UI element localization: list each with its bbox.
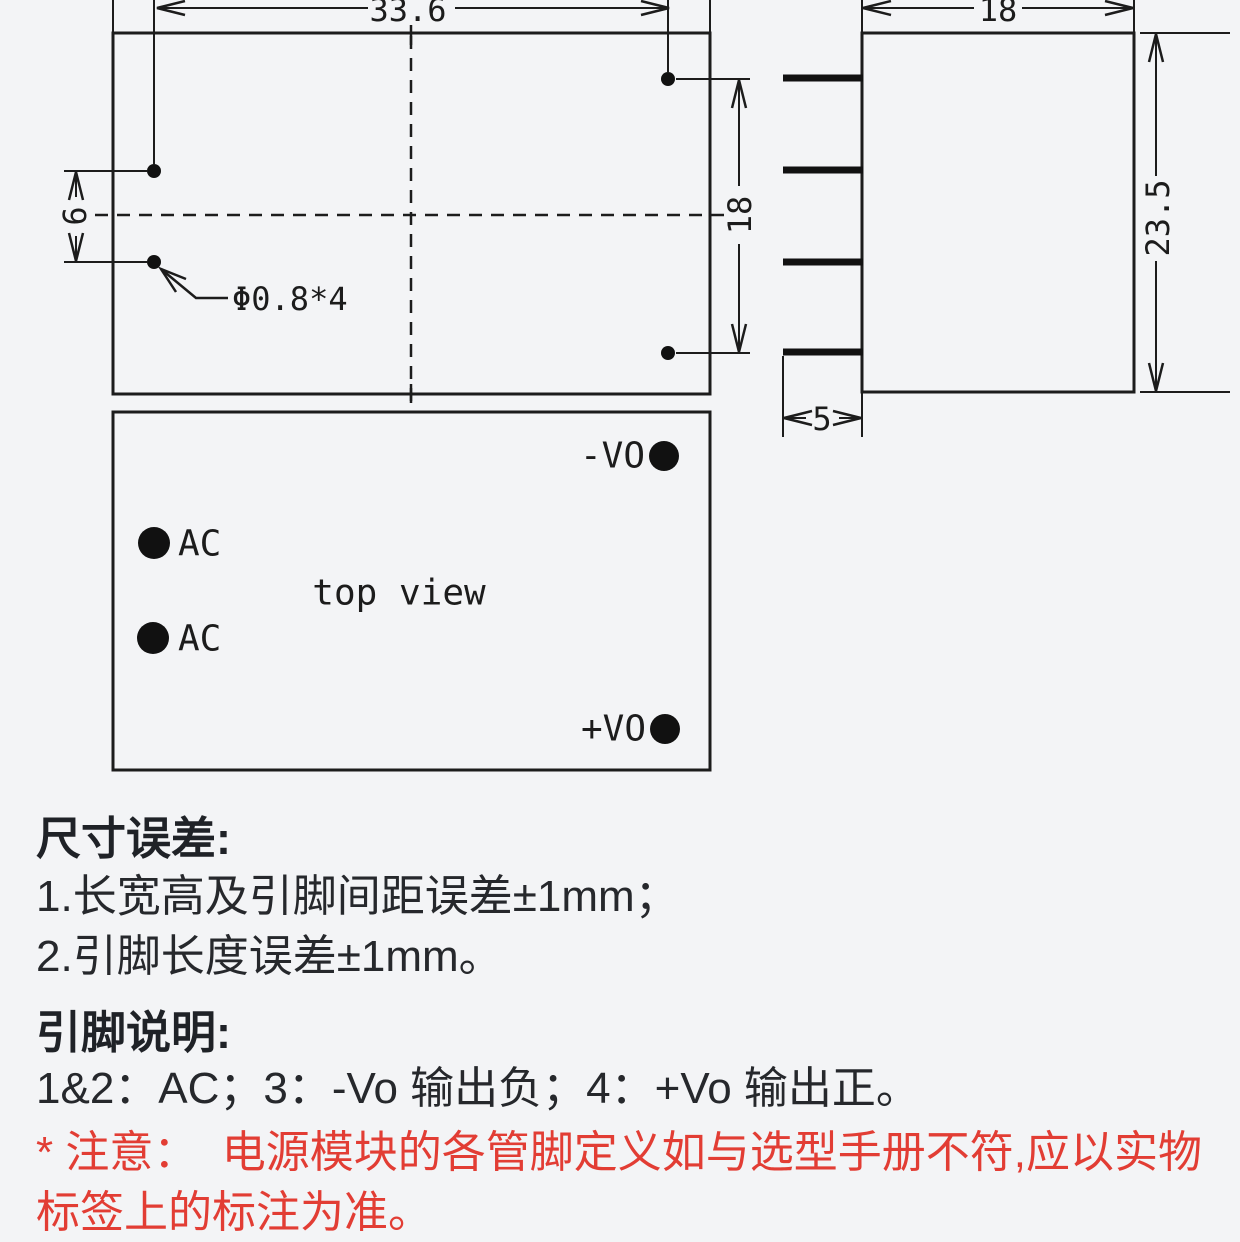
pin-hole-4 xyxy=(661,346,675,360)
side-dim-18-label: 18 xyxy=(979,0,1018,29)
pin-neg-vo xyxy=(649,441,679,471)
dimension-lines-side-view xyxy=(784,8,1156,418)
top-view-title: top view xyxy=(312,573,486,614)
arrowheads-bottom-view xyxy=(69,1,746,352)
dimension-drawing: 33.6 6 18 Φ0.8*4 xyxy=(0,0,1240,790)
side-dim-5-label: 5 xyxy=(812,400,831,438)
pos-vo-label: +VO xyxy=(581,709,646,750)
pin-hole-1 xyxy=(147,164,161,178)
side-pin-3 xyxy=(783,259,863,266)
side-pin-2 xyxy=(783,167,863,174)
arrowheads-side-view xyxy=(784,1,1163,425)
side-pin-1 xyxy=(783,75,863,82)
page: 33.6 6 18 Φ0.8*4 xyxy=(0,0,1240,1242)
size-tolerance-line2: 2.引脚长度误差±1mm。 xyxy=(36,920,503,984)
size-tolerance-line1: 1.长宽高及引脚间距误差±1mm； xyxy=(36,860,679,924)
side-pin-4 xyxy=(783,349,863,356)
warning-line1: * 注意： 电源模块的各管脚定义如与选型手册不符,应以实物 xyxy=(36,1116,1202,1180)
side-view-outline xyxy=(862,33,1134,392)
pin-hole-2 xyxy=(147,255,161,269)
pin-ac-lower xyxy=(137,622,169,654)
extension-lines-bottom-view xyxy=(64,0,750,353)
pin-pos-vo xyxy=(650,714,680,744)
dimension-lines-bottom-view xyxy=(76,8,739,352)
dim-6-label: 6 xyxy=(56,206,94,225)
pin-ac-upper xyxy=(138,527,170,559)
bottom-view xyxy=(64,0,750,403)
pin-description-line: 1&2：AC；3：-Vo 输出负；4：+Vo 输出正。 xyxy=(36,1052,920,1116)
pin-hole-3 xyxy=(661,72,675,86)
ac-upper-label: AC xyxy=(178,524,221,565)
hole-leader xyxy=(161,269,228,298)
centerlines xyxy=(95,25,726,403)
side-dim-23-5-label: 23.5 xyxy=(1139,179,1177,256)
warning-line2: 标签上的标注为准。 xyxy=(36,1176,432,1240)
dim-18-label: 18 xyxy=(721,196,759,235)
hole-size-label: Φ0.8*4 xyxy=(232,280,348,318)
dim-33-6-label: 33.6 xyxy=(369,0,446,29)
ac-lower-label: AC xyxy=(178,619,221,660)
size-tolerance-heading: 尺寸误差: xyxy=(36,802,231,867)
side-view-pins xyxy=(783,75,863,356)
neg-vo-label: -VO xyxy=(580,436,645,477)
